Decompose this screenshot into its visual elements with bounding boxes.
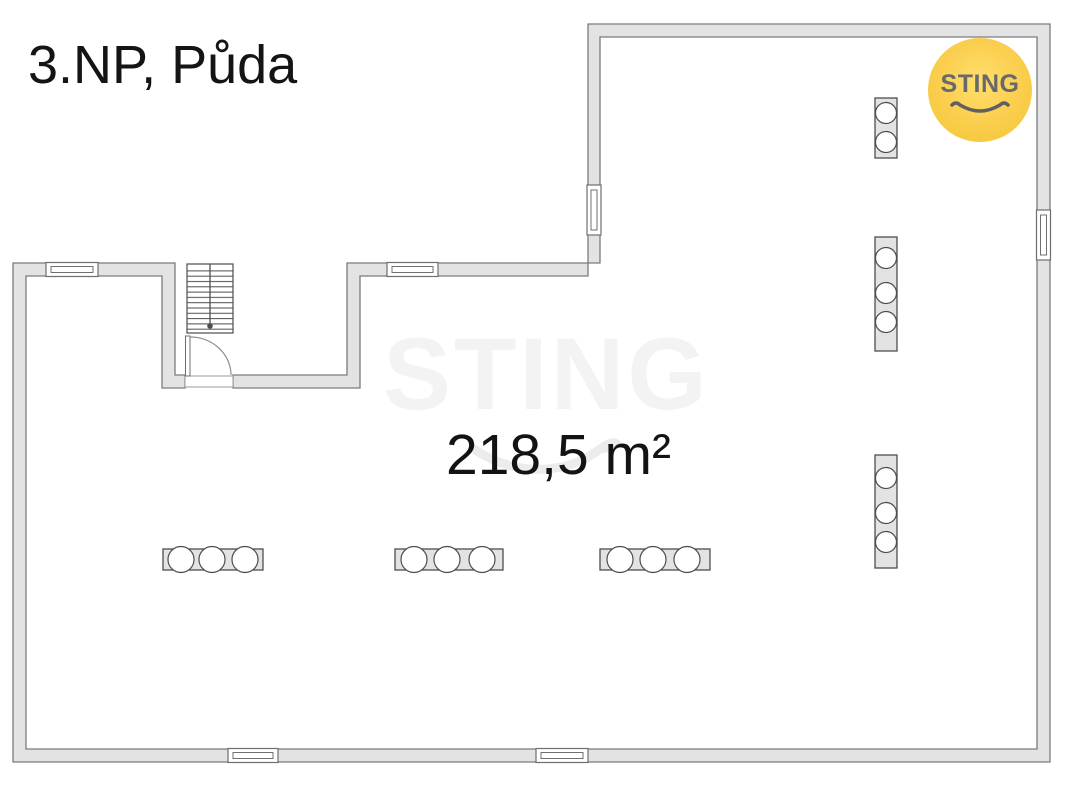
radiator-icon-3 [600,547,710,573]
chimney-flue-icon-1 [875,98,897,158]
sting-logo: STING [928,38,1032,142]
chimney-flue-icon-2 [875,237,897,351]
floorplan-page: STING [0,0,1067,800]
area-label: 218,5 m² [446,422,671,488]
window-icon-top-middle [387,263,438,277]
sting-logo-text: STING [941,72,1020,97]
window-icon-bottom-middle [536,749,588,763]
door-swing-icon [186,336,232,376]
chimney-flue-icon-3 [875,455,897,568]
floor-plan-drawing [0,0,1067,800]
staircase-icon [187,264,233,333]
sting-logo-smile-icon [946,99,1014,119]
radiator-icon-2 [395,547,503,573]
window-icon-right-wall [1037,210,1051,260]
window-icon-mid-left-wall [587,185,601,235]
floor-title: 3.NP, Půda [28,36,297,95]
window-icon-top-left [46,263,98,277]
radiator-icon-1 [163,547,263,573]
door-threshold [185,376,233,387]
window-icon-bottom-left [228,749,278,763]
